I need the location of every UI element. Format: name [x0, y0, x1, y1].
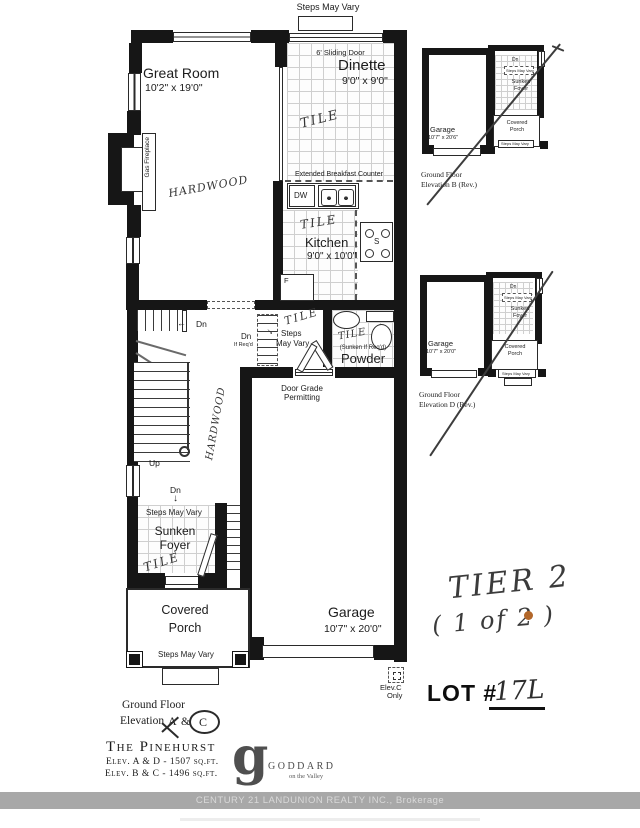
- porch-label-1: Covered: [152, 604, 218, 617]
- wall: [127, 205, 141, 237]
- mid-steps-label-1: Steps: [281, 330, 301, 338]
- garage-entry-steps: [227, 505, 240, 573]
- dinette-dims: 9'0" x 9'0": [342, 76, 388, 87]
- foyer-steps-label: Steps May Vary: [146, 509, 202, 517]
- stove-label: S: [374, 238, 379, 246]
- closet-outline: [207, 301, 255, 309]
- inset-steps-box: Steps May Vary: [504, 66, 534, 75]
- footer-caption-1: Ground Floor: [122, 699, 185, 711]
- top-steps-label: Steps May Vary: [283, 3, 373, 12]
- wall: [251, 30, 289, 43]
- toilet-tank: [366, 311, 394, 322]
- mid-if-reqd-label: If Req'd: [234, 343, 253, 349]
- inset-steps-top-label: Steps May Vary: [504, 296, 532, 300]
- wall: [486, 272, 541, 278]
- kitchen-label: Kitchen: [305, 236, 348, 250]
- wall: [255, 300, 407, 310]
- wall: [129, 43, 142, 73]
- fridge-label: F: [284, 277, 289, 285]
- garage-door: [431, 370, 477, 378]
- fireplace-label-strip: Gas Fireplace: [142, 133, 156, 211]
- wall: [127, 497, 138, 573]
- brokerage-text: CENTURY 21 LANDUNION REALTY INC., Broker…: [196, 795, 444, 806]
- window: [126, 237, 140, 264]
- door-grade-label-2: Permitting: [276, 394, 328, 402]
- inset-steps-top-label: Steps May Vary: [506, 69, 534, 73]
- wall: [240, 367, 293, 378]
- kitchen-sink: [318, 185, 356, 207]
- counter-edge: [285, 180, 393, 182]
- mini-steps: [257, 314, 278, 366]
- porch-post: [538, 369, 546, 377]
- porch-post: [127, 652, 142, 667]
- goddard-logo-name: GODDARD: [268, 762, 336, 773]
- model-name: The Pinehurst: [106, 740, 216, 756]
- wall: [133, 300, 207, 310]
- inset-garage-dims: 10'7" x 20'0": [426, 350, 456, 356]
- inset-steps-box: Steps May Vary: [502, 293, 532, 302]
- inset-garage-label: Garage: [428, 340, 453, 348]
- inset-steps-bottom-label: Steps May Vary: [502, 372, 530, 376]
- inset-caption-1: Ground Floor: [419, 391, 460, 399]
- window: [126, 465, 140, 497]
- great-room-dims: 10'2" x 19'0": [145, 83, 203, 94]
- wall: [275, 43, 287, 67]
- wall: [488, 45, 543, 51]
- elev-c-marker: [388, 667, 404, 683]
- inset-steps-bottom-box: Steps May Vary: [498, 369, 536, 378]
- garage-label: Garage: [328, 605, 375, 620]
- wall: [127, 573, 165, 588]
- half-wall: [279, 67, 283, 181]
- porch-steps-label: Steps May Vary: [158, 651, 214, 659]
- porch-post: [233, 652, 248, 667]
- powder-sink: [333, 311, 360, 329]
- wall: [420, 275, 493, 282]
- wall: [131, 30, 173, 43]
- sliding-door-label: 6' Sliding Door: [303, 49, 378, 57]
- stove: S: [360, 222, 393, 262]
- dishwasher-label: DW: [294, 192, 307, 200]
- wall: [240, 378, 252, 590]
- powder-label: Powder: [330, 352, 396, 366]
- goddard-logo-tagline: on the Valley: [289, 774, 323, 781]
- front-door-threshold: [165, 576, 200, 585]
- sqft-line-b: Elev. B & C - 1496 sq.ft.: [105, 770, 218, 780]
- inset-garage-label: Garage: [430, 126, 455, 134]
- window: [173, 32, 251, 42]
- wall: [422, 48, 495, 55]
- sliding-door: [289, 33, 383, 42]
- goddard-logo-icon: g: [232, 730, 268, 785]
- porch-post: [488, 369, 496, 377]
- dinette-label: Dinette: [338, 58, 386, 74]
- foyer-label-1: Sunken: [148, 525, 202, 538]
- stair-dn-label: Dn: [196, 320, 207, 329]
- porch-step-outline: [162, 668, 219, 685]
- burner: [365, 229, 374, 238]
- sqft-line-a: Elev. A & D - 1507 sq.ft.: [106, 758, 219, 768]
- inset-porch-label-2: Porch: [504, 352, 526, 358]
- kitchen-dims: 9'0" x 10'0": [307, 252, 356, 263]
- circle-mark: [189, 710, 220, 734]
- lot-number-label: LOT #: [427, 681, 497, 705]
- sink-basin: [321, 189, 337, 206]
- window: [128, 73, 141, 111]
- inset-caption-1: Ground Floor: [421, 171, 462, 179]
- garage-dims: 10'7" x 20'0": [324, 624, 382, 635]
- lot-number-value: 17L: [493, 675, 545, 708]
- dishwasher: DW: [289, 185, 315, 207]
- top-step-outline: [298, 16, 353, 31]
- lot-number-underline: [489, 707, 545, 710]
- hardwood-note-vertical: HARDWOOD: [204, 385, 228, 462]
- hardwood-note: HARDWOOD: [167, 173, 249, 200]
- inset-steps-bottom-box: Steps May Vary: [498, 140, 534, 148]
- garage-door: [262, 645, 374, 658]
- wall: [335, 367, 407, 378]
- wall: [215, 503, 227, 573]
- elev-c-note-2: Only: [387, 692, 402, 700]
- brokerage-bar: CENTURY 21 LANDUNION REALTY INC., Broker…: [0, 792, 640, 809]
- elev-c-marker-inner: [393, 672, 401, 680]
- fridge: F: [280, 274, 314, 301]
- burner: [365, 249, 374, 258]
- floorplan-sheet: Steps May Vary 6' Sliding Door Gas Firep…: [0, 0, 640, 828]
- wall: [420, 275, 427, 375]
- wall: [127, 111, 141, 135]
- stair-up-label: Up: [149, 459, 160, 468]
- sink-basin: [338, 189, 354, 206]
- mid-dn-label: Dn: [241, 333, 251, 341]
- inset-porch-label-1: Covered: [500, 345, 530, 351]
- inset-dn-label: Dn: [512, 58, 518, 63]
- burner: [381, 229, 390, 238]
- gas-fireplace-label: Gas Fireplace: [145, 137, 152, 177]
- inset-porch-step: [504, 378, 532, 386]
- inset-steps-bottom-label: Steps May Vary: [501, 142, 529, 146]
- tier-annotation-1: TIER 2: [447, 559, 573, 607]
- foyer-arrow-down: ↓: [173, 494, 178, 505]
- stair-rail-spiral: [179, 446, 190, 457]
- ink-dot: [524, 611, 533, 620]
- porch-post: [540, 141, 548, 149]
- great-room-label: Great Room: [143, 66, 219, 81]
- footer-caption-pre: Elevation: [120, 715, 164, 727]
- stair-arrow-left: ←: [177, 319, 186, 328]
- inset-foyer-label-1: Sunken: [506, 307, 534, 313]
- porch-label-2: Porch: [158, 622, 212, 635]
- scan-artifact: [180, 818, 480, 821]
- inset-dn-label: Dn: [510, 285, 516, 290]
- mid-steps-label-2: May Vary: [276, 340, 309, 348]
- tier-annotation-2: ( 1 of 2 ): [431, 601, 556, 640]
- wall: [374, 645, 396, 660]
- stair-upper-run: [137, 310, 182, 331]
- stair-rail: [187, 362, 189, 450]
- breakfast-counter-label: Extended Breakfast Counter: [284, 171, 394, 178]
- inset-porch-label-1: Covered: [502, 121, 532, 127]
- inset-garage-dims: 10'7" x 20'6": [428, 136, 458, 142]
- burner: [381, 249, 390, 258]
- stair-winder: [136, 340, 187, 356]
- inset-caption-2: Elevation B (Rev.): [421, 181, 477, 189]
- inset-porch-label-2: Porch: [506, 128, 528, 134]
